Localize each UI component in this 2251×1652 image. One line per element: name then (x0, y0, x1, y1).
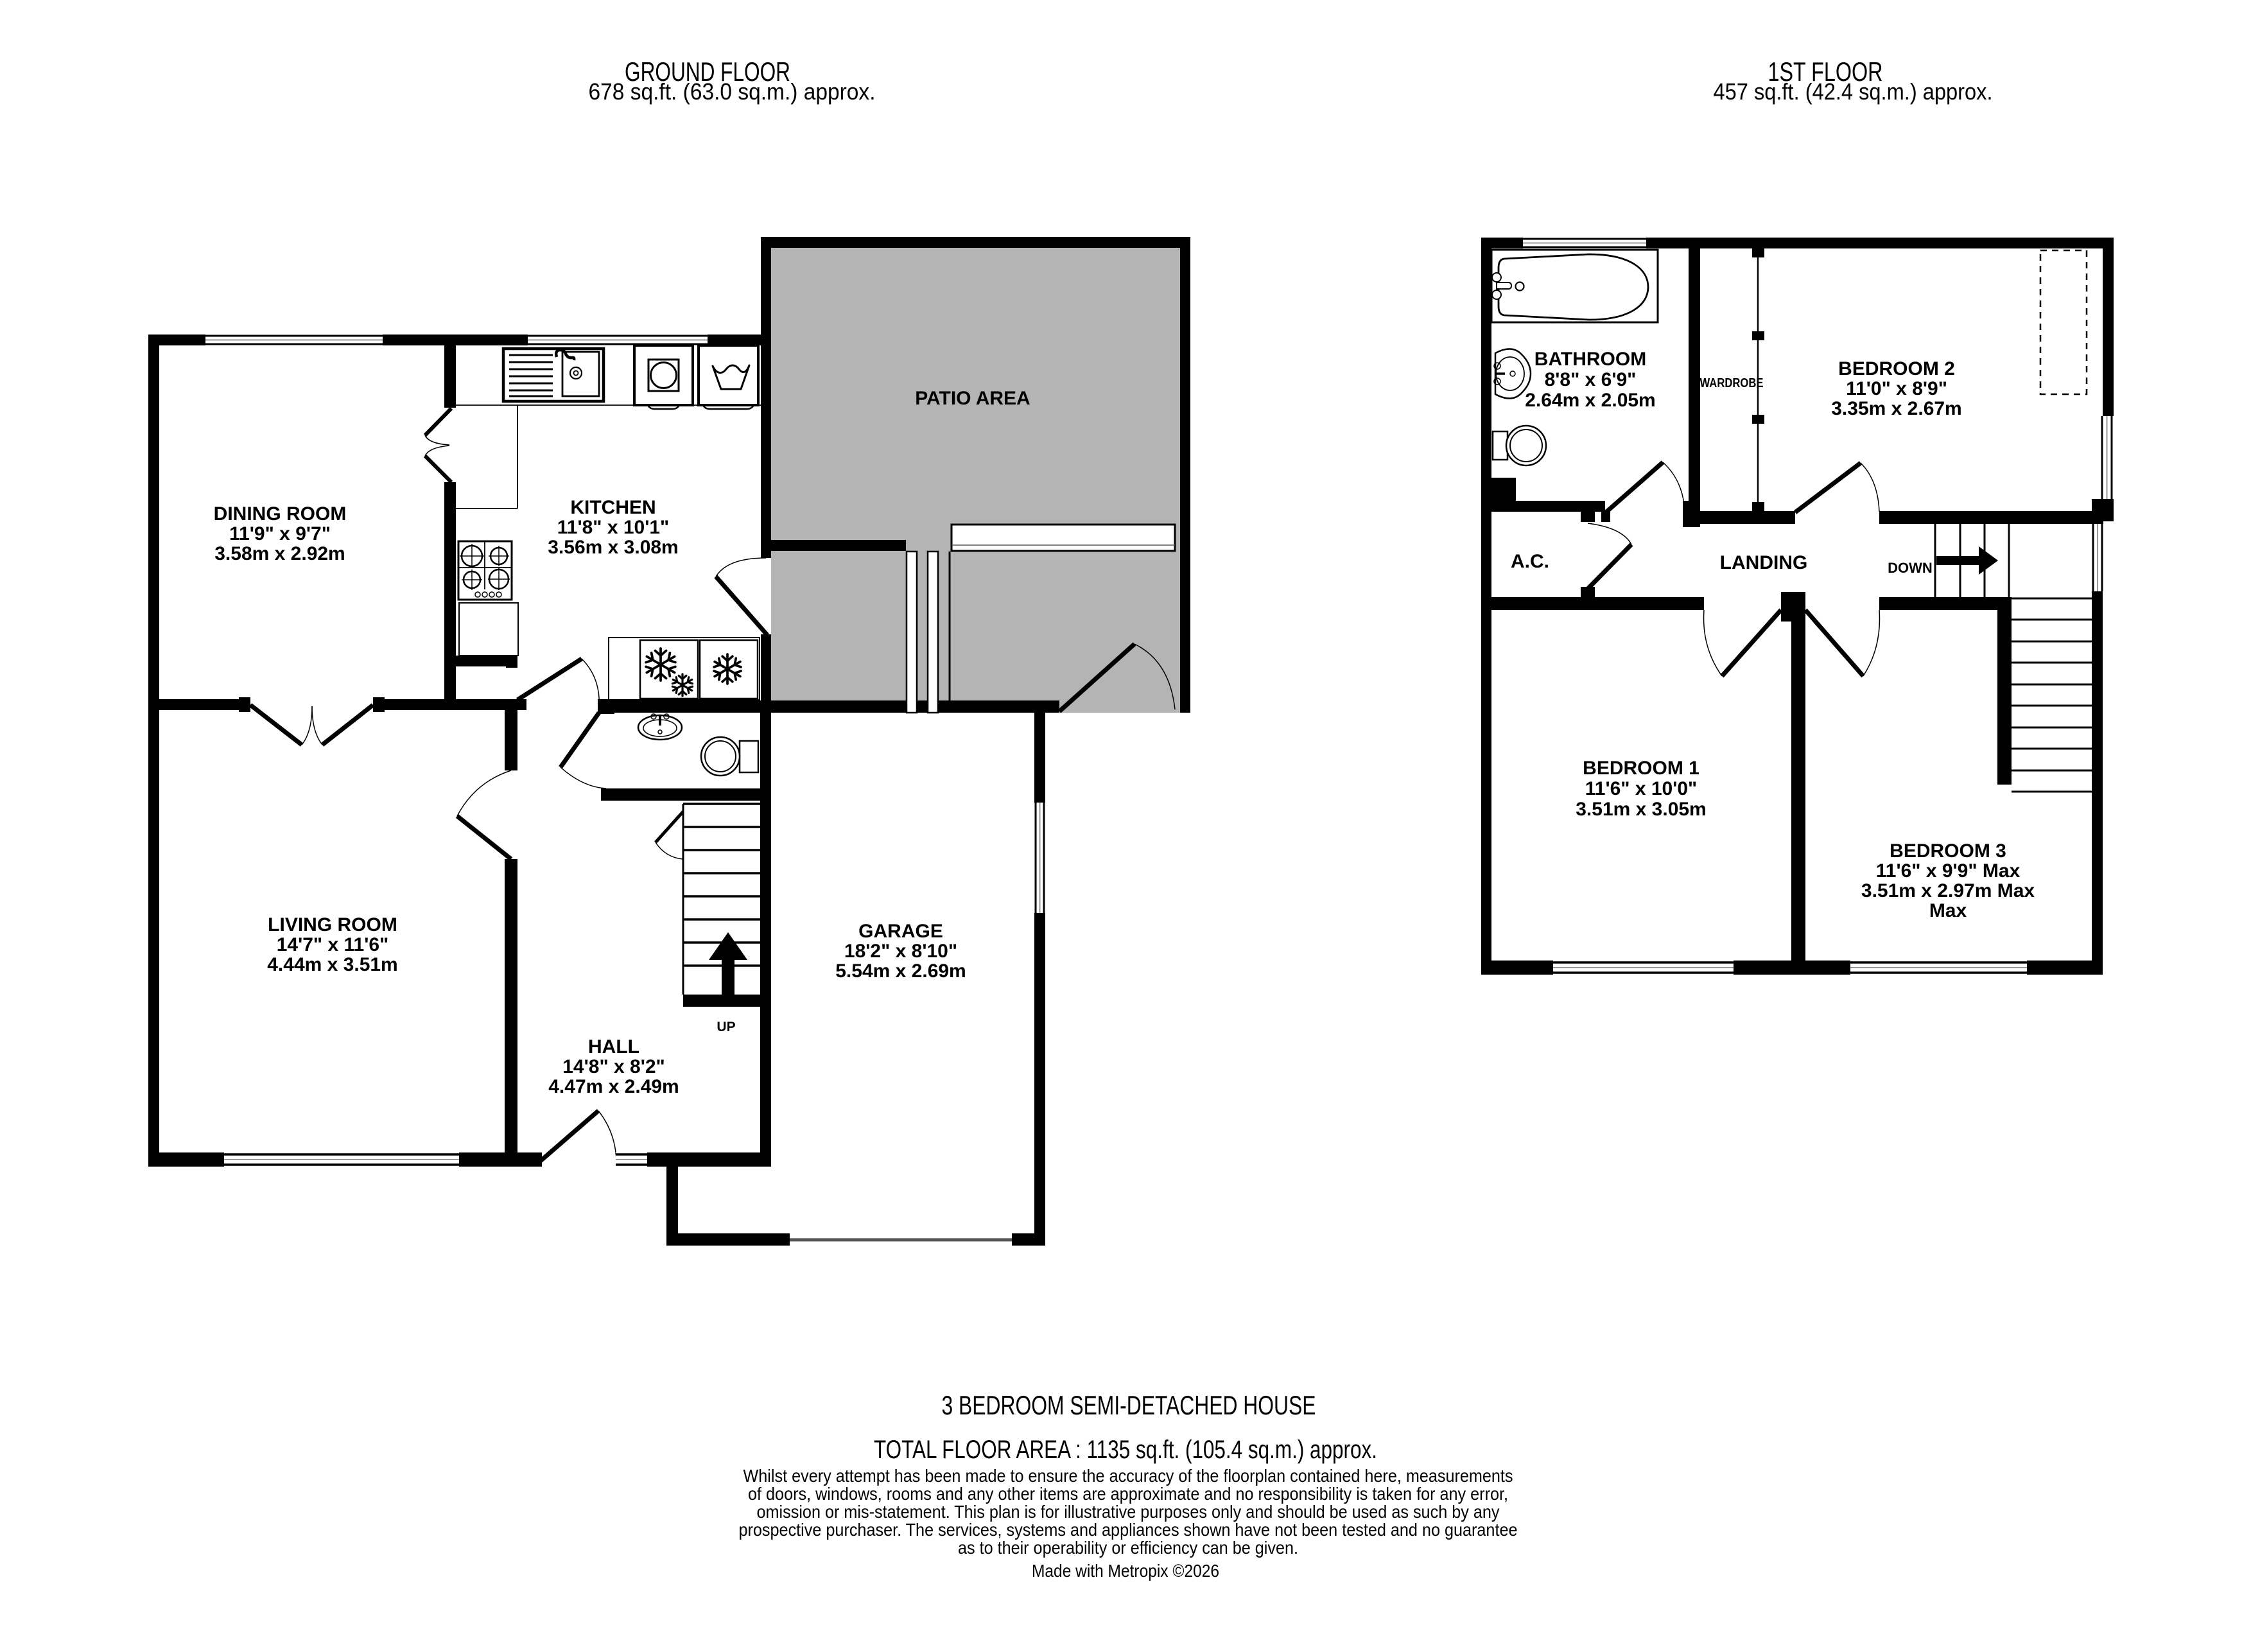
svg-text:Made with Metropix ©2026: Made with Metropix ©2026 (1032, 1561, 1219, 1581)
svg-text:UP: UP (717, 1020, 735, 1034)
svg-text:GARAGE: GARAGE (858, 921, 943, 942)
svg-text:4.47m x 2.49m: 4.47m x 2.49m (548, 1076, 679, 1097)
svg-text:3.51m x 2.97m Max: 3.51m x 2.97m Max (1861, 880, 2035, 901)
svg-text:11'8" x 10'1": 11'8" x 10'1" (557, 517, 670, 538)
svg-text:BEDROOM 1: BEDROOM 1 (1583, 758, 1699, 779)
svg-text:PATIO AREA: PATIO AREA (915, 388, 1030, 409)
svg-text:457 sq.ft. (42.4 sq.m.) approx: 457 sq.ft. (42.4 sq.m.) approx. (1714, 78, 1993, 105)
svg-text:14'8" x 8'2": 14'8" x 8'2" (562, 1056, 665, 1077)
svg-text:8'8" x 6'9": 8'8" x 6'9" (1545, 369, 1637, 390)
svg-text:3.35m x 2.67m: 3.35m x 2.67m (1831, 398, 1961, 419)
svg-text:Max: Max (1929, 900, 1967, 921)
svg-text:11'9" x 9'7": 11'9" x 9'7" (229, 523, 331, 544)
svg-text:BEDROOM 3: BEDROOM 3 (1890, 840, 2006, 862)
svg-text:3 BEDROOM SEMI-DETACHED HOUSE: 3 BEDROOM SEMI-DETACHED HOUSE (942, 1390, 1316, 1420)
svg-text:TOTAL FLOOR AREA : 1135 sq.ft.: TOTAL FLOOR AREA : 1135 sq.ft. (105.4 sq… (874, 1436, 1377, 1464)
svg-text:BATHROOM: BATHROOM (1534, 349, 1646, 370)
svg-text:A.C.: A.C. (1511, 551, 1549, 572)
svg-text:as to their operability or eff: as to their operability or efficiency ca… (958, 1538, 1298, 1558)
svg-text:14'7" x 11'6": 14'7" x 11'6" (277, 934, 389, 955)
svg-text:4.44m x 3.51m: 4.44m x 3.51m (267, 954, 397, 975)
svg-text:of doors, windows, rooms and a: of doors, windows, rooms and any other i… (748, 1484, 1508, 1504)
svg-text:11'0" x 8'9": 11'0" x 8'9" (1846, 378, 1947, 399)
svg-text:HALL: HALL (588, 1036, 639, 1057)
svg-text:3.56m x 3.08m: 3.56m x 3.08m (548, 537, 678, 558)
svg-text:prospective purchaser. The ser: prospective purchaser. The services, sys… (739, 1520, 1518, 1540)
svg-text:omission or mis-statement. Thi: omission or mis-statement. This plan is … (757, 1502, 1500, 1522)
svg-text:DINING ROOM: DINING ROOM (214, 503, 347, 525)
svg-text:11'6" x 10'0": 11'6" x 10'0" (1585, 778, 1698, 799)
svg-text:11'6" x 9'9" Max: 11'6" x 9'9" Max (1876, 860, 2021, 882)
svg-text:5.54m x 2.69m: 5.54m x 2.69m (835, 961, 966, 982)
svg-text:LANDING: LANDING (1720, 552, 1808, 573)
svg-text:3.58m x 2.92m: 3.58m x 2.92m (214, 543, 345, 564)
svg-text:678 sq.ft. (63.0 sq.m.) approx: 678 sq.ft. (63.0 sq.m.) approx. (589, 78, 876, 105)
svg-text:18'2" x 8'10": 18'2" x 8'10" (844, 941, 957, 962)
svg-text:KITCHEN: KITCHEN (570, 497, 656, 518)
svg-text:DOWN: DOWN (1888, 560, 1933, 576)
svg-text:Whilst every attempt has been: Whilst every attempt has been made to en… (743, 1466, 1513, 1486)
svg-text:BEDROOM 2: BEDROOM 2 (1838, 358, 1955, 379)
svg-text:LIVING ROOM: LIVING ROOM (268, 914, 397, 935)
svg-text:WARDROBE: WARDROBE (1700, 376, 1764, 390)
svg-text:3.51m x 3.05m: 3.51m x 3.05m (1576, 799, 1706, 820)
svg-text:2.64m x 2.05m: 2.64m x 2.05m (1525, 390, 1655, 411)
